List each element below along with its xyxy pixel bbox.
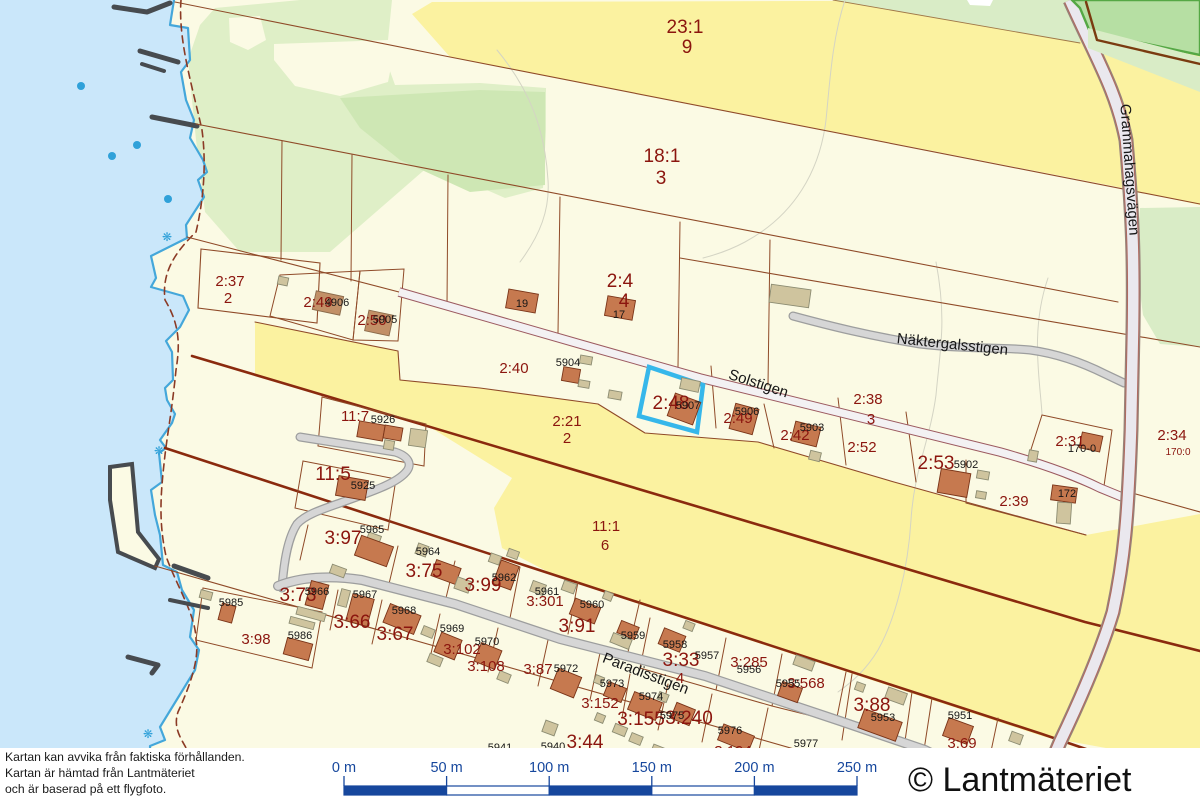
- svg-text:172: 172: [1058, 488, 1076, 500]
- svg-text:11:1: 11:1: [592, 518, 620, 535]
- svg-text:3:108: 3:108: [467, 658, 505, 675]
- svg-text:170-0: 170-0: [1068, 443, 1096, 455]
- svg-text:❋: ❋: [162, 230, 172, 244]
- svg-text:3:152: 3:152: [581, 695, 619, 712]
- svg-text:5985: 5985: [219, 597, 243, 609]
- svg-text:och är baserad på ett flygfoto: och är baserad på ett flygfoto.: [5, 782, 166, 796]
- svg-text:3:98: 3:98: [241, 631, 270, 648]
- svg-text:5972: 5972: [554, 663, 578, 675]
- svg-text:18:1: 18:1: [644, 146, 681, 167]
- svg-text:5905: 5905: [373, 314, 397, 326]
- svg-text:2: 2: [563, 430, 571, 447]
- svg-text:2:38: 2:38: [853, 391, 882, 408]
- svg-text:5958: 5958: [663, 639, 687, 651]
- svg-text:6: 6: [601, 537, 609, 554]
- svg-text:5955: 5955: [776, 678, 800, 690]
- svg-text:9: 9: [682, 37, 693, 58]
- svg-text:250 m: 250 m: [837, 760, 877, 776]
- svg-text:5973: 5973: [600, 678, 624, 690]
- svg-text:5957: 5957: [695, 650, 719, 662]
- svg-text:3:87: 3:87: [523, 661, 552, 678]
- svg-text:3:67: 3:67: [377, 624, 414, 645]
- svg-text:5953: 5953: [871, 712, 895, 724]
- svg-text:5986: 5986: [288, 630, 312, 642]
- svg-text:2:53: 2:53: [918, 453, 955, 474]
- svg-text:5904: 5904: [556, 357, 580, 369]
- svg-text:5951: 5951: [948, 710, 972, 722]
- svg-text:2:37: 2:37: [215, 273, 244, 290]
- svg-text:3: 3: [867, 411, 875, 428]
- svg-text:5964: 5964: [416, 546, 440, 558]
- svg-text:2:39: 2:39: [999, 493, 1028, 510]
- svg-text:5959: 5959: [621, 630, 645, 642]
- svg-text:❋: ❋: [143, 727, 153, 741]
- svg-text:0 m: 0 m: [332, 760, 356, 776]
- svg-text:5961: 5961: [535, 586, 559, 598]
- svg-text:2:52: 2:52: [847, 439, 876, 456]
- svg-text:2:40: 2:40: [499, 360, 528, 377]
- svg-text:23:1: 23:1: [667, 17, 704, 38]
- svg-text:19: 19: [516, 298, 528, 310]
- svg-text:5906: 5906: [735, 406, 759, 418]
- svg-text:5967: 5967: [353, 589, 377, 601]
- svg-text:170:0: 170:0: [1165, 447, 1190, 458]
- svg-text:5976: 5976: [718, 725, 742, 737]
- svg-text:5965: 5965: [360, 524, 384, 536]
- svg-text:5902: 5902: [954, 459, 978, 471]
- svg-text:© Lantmäteriet: © Lantmäteriet: [908, 761, 1132, 799]
- svg-text:2:21: 2:21: [552, 413, 581, 430]
- svg-text:3:91: 3:91: [559, 616, 596, 637]
- svg-text:5968: 5968: [392, 605, 416, 617]
- svg-text:Kartan är hämtad från Lantmäte: Kartan är hämtad från Lantmäteriet: [5, 766, 195, 780]
- svg-text:3:66: 3:66: [334, 612, 371, 633]
- svg-text:2:4: 2:4: [607, 271, 634, 292]
- svg-text:50 m: 50 m: [430, 760, 462, 776]
- svg-text:2: 2: [224, 290, 232, 307]
- svg-text:5969: 5969: [440, 623, 464, 635]
- svg-text:5970: 5970: [475, 636, 499, 648]
- svg-text:5956: 5956: [737, 664, 761, 676]
- svg-text:17: 17: [613, 309, 625, 321]
- svg-text:5974: 5974: [639, 691, 663, 703]
- svg-text:150 m: 150 m: [632, 760, 672, 776]
- svg-text:200 m: 200 m: [734, 760, 774, 776]
- svg-text:5925: 5925: [351, 480, 375, 492]
- svg-text:4906: 4906: [325, 297, 349, 309]
- svg-text:3:75: 3:75: [406, 561, 443, 582]
- svg-text:3:97: 3:97: [325, 528, 362, 549]
- svg-text:5926: 5926: [371, 414, 395, 426]
- svg-text:❋: ❋: [154, 444, 164, 458]
- svg-text:5903: 5903: [800, 422, 824, 434]
- svg-text:11:7: 11:7: [341, 408, 369, 425]
- svg-text:3:155: 3:155: [617, 709, 665, 730]
- svg-text:5907: 5907: [676, 400, 700, 412]
- svg-text:5962: 5962: [492, 572, 516, 584]
- svg-text:100 m: 100 m: [529, 760, 569, 776]
- svg-text:5975: 5975: [660, 710, 684, 722]
- svg-text:Kartan kan avvika från faktisk: Kartan kan avvika från faktiska förhålla…: [5, 750, 245, 764]
- svg-text:3: 3: [656, 168, 667, 189]
- svg-text:2:34: 2:34: [1157, 427, 1186, 444]
- svg-text:11:5: 11:5: [315, 464, 351, 485]
- svg-text:5960: 5960: [580, 599, 604, 611]
- svg-text:5966: 5966: [305, 586, 329, 598]
